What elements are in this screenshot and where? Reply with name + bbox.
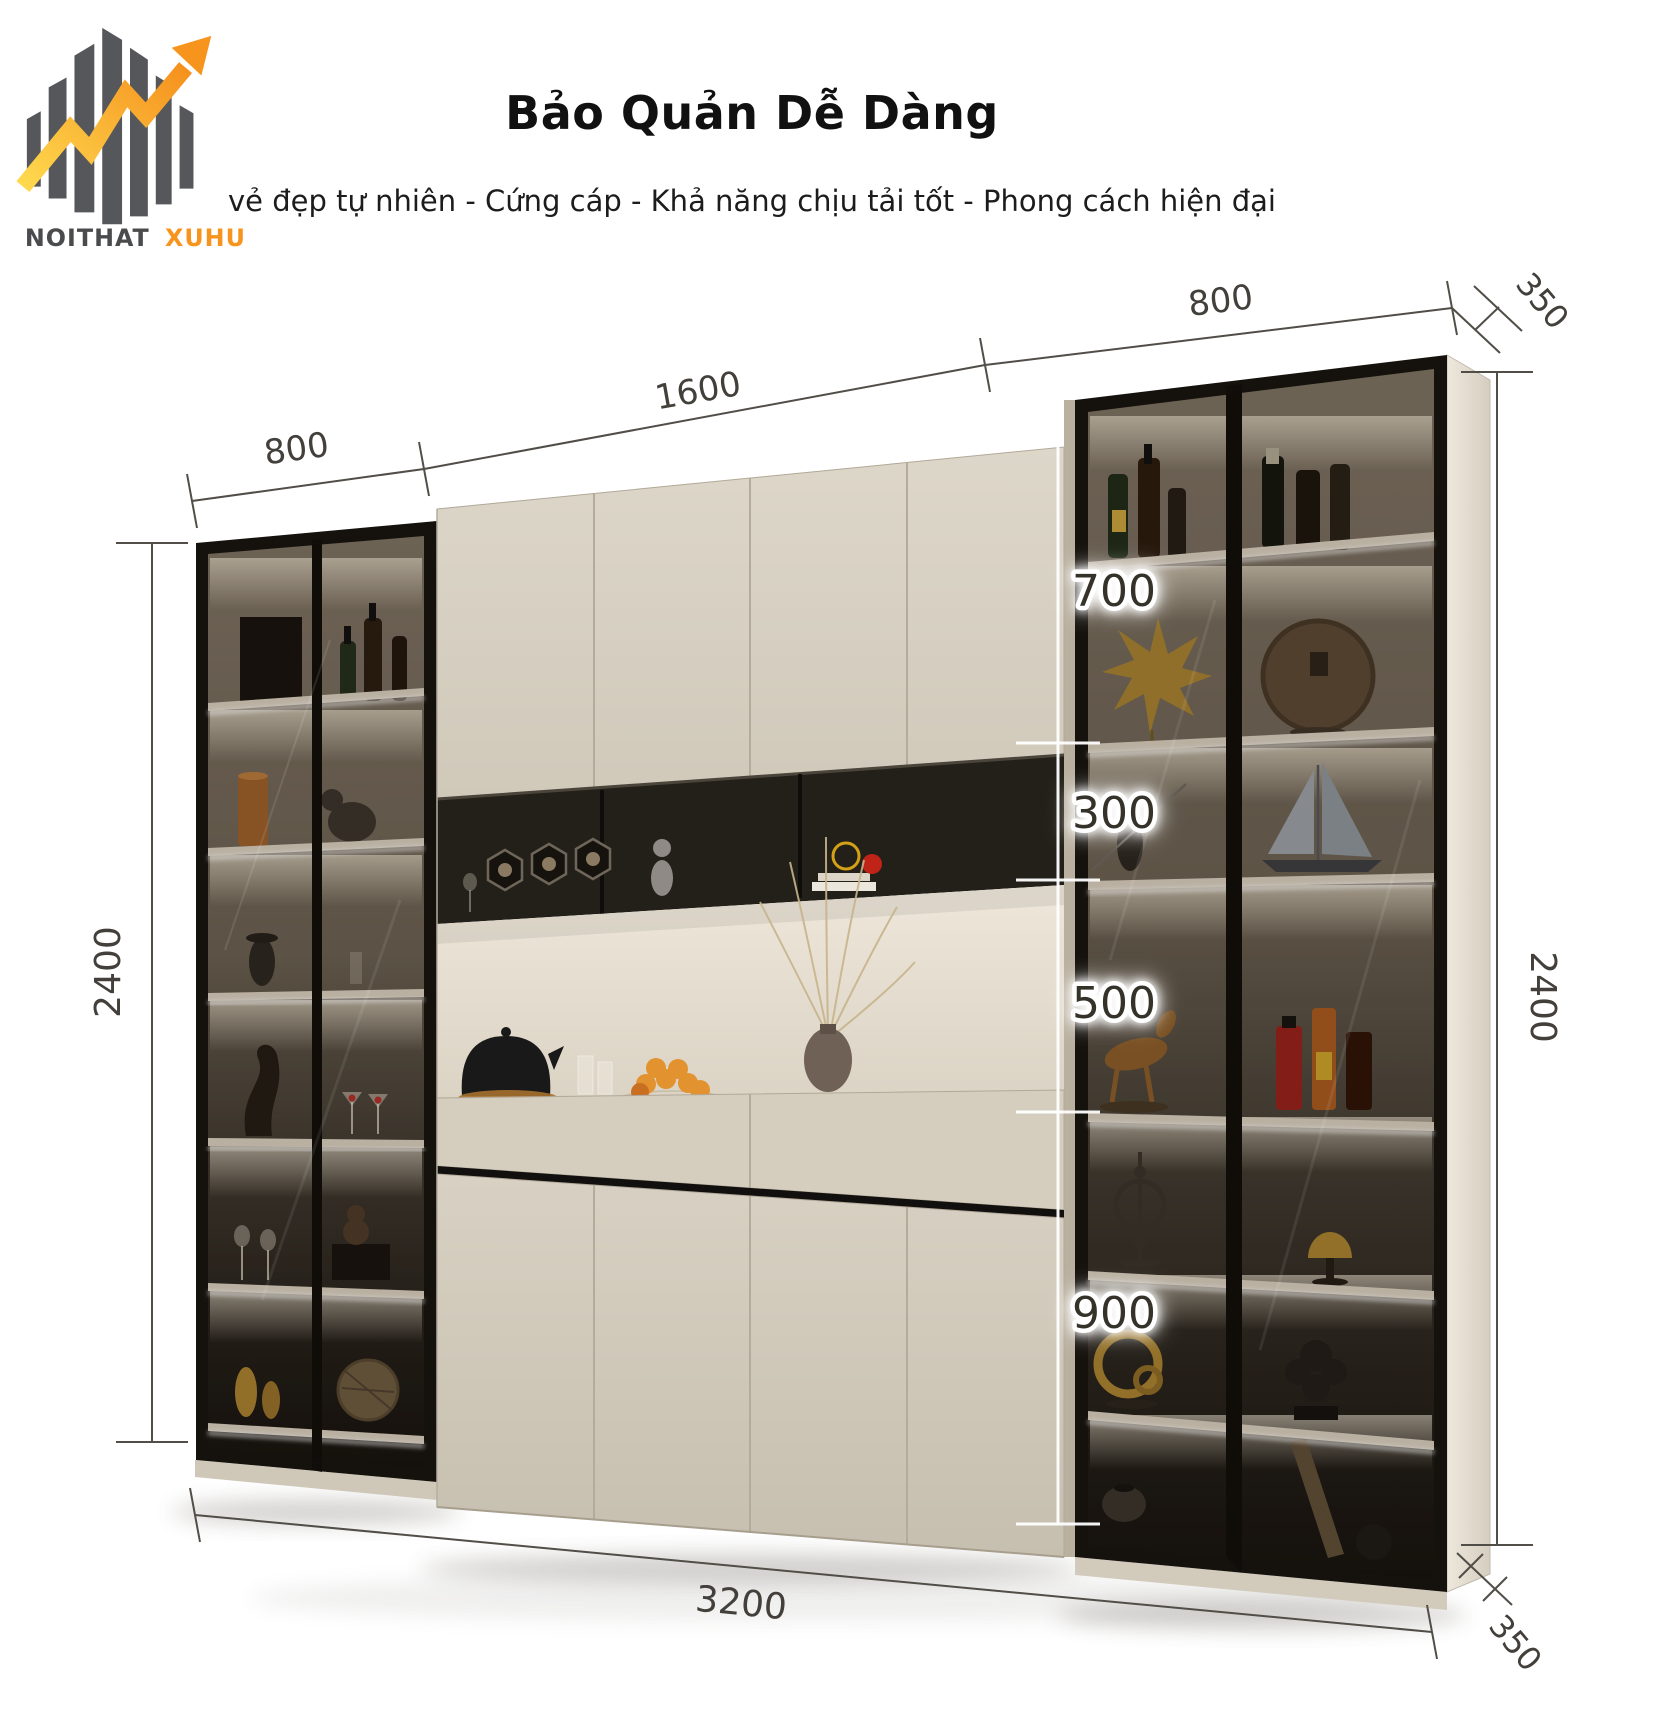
dim-top-depth-350: 350 (1452, 265, 1577, 353)
dim-label-800-left: 800 (262, 425, 332, 474)
dim-left-2400: 2400 (88, 543, 188, 1442)
product-diagram: 800 1600 800 350 (0, 260, 1654, 1732)
left-cabinet-glass (208, 536, 424, 1468)
dim-label-350-bottom: 350 (1481, 1607, 1549, 1678)
dim-label-700: 700 (1072, 566, 1156, 617)
center-cabinet (437, 400, 1076, 1557)
dim-label-2400-right: 2400 (1522, 951, 1563, 1043)
right-cabinet-glass (1088, 369, 1434, 1580)
page: NOITHAT XUHUONG Bảo Quản Dễ Dàng vẻ đẹp … (0, 0, 1654, 1732)
page-subtitle: vẻ đẹp tự nhiên - Cứng cáp - Khả năng ch… (0, 184, 1504, 218)
dim-label-3200: 3200 (694, 1579, 789, 1629)
dim-top-right-800: 800 (985, 277, 1457, 365)
dim-label-2400-left: 2400 (88, 926, 129, 1018)
dim-top-center-1600: 1600 (424, 338, 990, 469)
dim-label-1600: 1600 (652, 364, 744, 418)
dim-label-900: 900 (1072, 1288, 1156, 1339)
dim-label-300: 300 (1072, 788, 1156, 839)
right-cabinet-side-panel (1447, 355, 1490, 1592)
dim-top-left-800: 800 (187, 425, 429, 528)
brand-accent: XUHUONG (165, 224, 246, 252)
dim-label-350-top: 350 (1508, 265, 1576, 336)
left-display-cabinet (195, 521, 437, 1500)
dim-label-800-right: 800 (1186, 277, 1255, 325)
dim-label-500: 500 (1072, 978, 1156, 1029)
brand-logo-text: NOITHAT XUHUONG (25, 224, 246, 252)
brand-primary: NOITHAT (25, 224, 150, 252)
page-title: Bảo Quản Dễ Dàng (0, 86, 1504, 140)
